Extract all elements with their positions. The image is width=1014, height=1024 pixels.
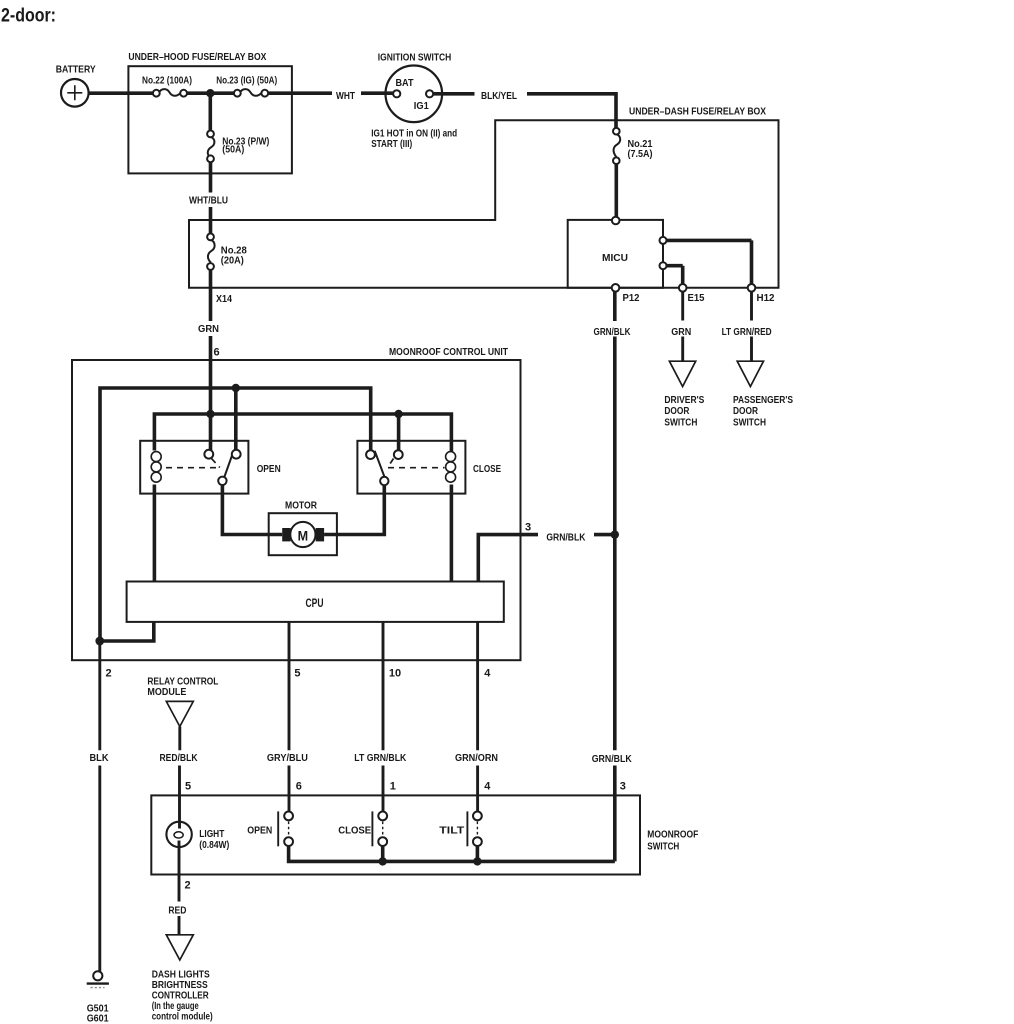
svg-text:WHT: WHT xyxy=(336,90,355,102)
svg-text:LT GRN/RED: LT GRN/RED xyxy=(722,326,772,338)
svg-text:No.23 (IG) (50A): No.23 (IG) (50A) xyxy=(216,75,277,87)
svg-text:CLOSE: CLOSE xyxy=(473,463,501,475)
svg-text:4: 4 xyxy=(484,668,491,680)
svg-text:X14: X14 xyxy=(216,293,232,305)
svg-text:M: M xyxy=(298,527,309,543)
svg-text:3: 3 xyxy=(525,522,531,534)
svg-text:control module): control module) xyxy=(152,1011,213,1023)
svg-text:MOTOR: MOTOR xyxy=(285,500,317,512)
svg-text:MODULE: MODULE xyxy=(147,686,186,698)
svg-text:MOONROOF: MOONROOF xyxy=(647,829,698,841)
svg-text:OPEN: OPEN xyxy=(257,463,281,475)
svg-text:GRN/BLK: GRN/BLK xyxy=(546,532,585,544)
svg-text:GRN/BLK: GRN/BLK xyxy=(592,753,632,765)
svg-text:UNDER–DASH FUSE/RELAY BOX: UNDER–DASH FUSE/RELAY BOX xyxy=(629,105,766,117)
svg-text:No.22 (100A): No.22 (100A) xyxy=(142,74,192,86)
svg-text:BAT: BAT xyxy=(396,77,414,89)
svg-text:2-door:: 2-door: xyxy=(1,6,56,27)
svg-text:RED/BLK: RED/BLK xyxy=(160,752,198,764)
svg-text:GRN/ORN: GRN/ORN xyxy=(455,752,498,764)
svg-text:2: 2 xyxy=(185,880,191,892)
svg-text:BATTERY: BATTERY xyxy=(56,64,96,76)
svg-text:IG1: IG1 xyxy=(414,100,429,112)
svg-text:E15: E15 xyxy=(688,292,705,304)
svg-text:G601: G601 xyxy=(87,1013,109,1024)
svg-text:MICU: MICU xyxy=(602,252,628,264)
svg-text:5: 5 xyxy=(185,781,191,793)
svg-text:BLK/YEL: BLK/YEL xyxy=(481,90,517,102)
svg-text:GRY/BLU: GRY/BLU xyxy=(267,752,308,764)
svg-text:OPEN: OPEN xyxy=(247,825,272,837)
svg-text:P12: P12 xyxy=(623,292,640,304)
svg-text:4: 4 xyxy=(484,781,491,793)
svg-text:WHT/BLU: WHT/BLU xyxy=(189,195,228,207)
svg-text:CPU: CPU xyxy=(306,598,324,610)
svg-text:SWITCH: SWITCH xyxy=(664,416,697,428)
svg-text:1: 1 xyxy=(390,781,396,793)
svg-text:H12: H12 xyxy=(757,292,775,304)
svg-text:DOOR: DOOR xyxy=(664,405,689,417)
svg-text:3: 3 xyxy=(620,781,626,793)
svg-text:(20A): (20A) xyxy=(221,255,244,267)
svg-text:TILT: TILT xyxy=(439,825,465,837)
svg-text:SWITCH: SWITCH xyxy=(733,416,766,428)
svg-text:GRN/BLK: GRN/BLK xyxy=(594,326,631,338)
svg-text:2: 2 xyxy=(106,668,112,680)
svg-text:START (III): START (III) xyxy=(371,138,412,150)
svg-text:5: 5 xyxy=(294,668,300,680)
svg-text:CLOSE: CLOSE xyxy=(338,825,371,837)
svg-text:(0.84W): (0.84W) xyxy=(199,839,229,851)
svg-text:UNDER–HOOD FUSE/RELAY BOX: UNDER–HOOD FUSE/RELAY BOX xyxy=(128,51,266,63)
svg-text:BLK: BLK xyxy=(90,752,109,764)
svg-text:6: 6 xyxy=(296,781,302,793)
svg-text:GRN: GRN xyxy=(198,323,219,335)
svg-text:LT GRN/BLK: LT GRN/BLK xyxy=(354,752,406,764)
svg-text:(50A): (50A) xyxy=(222,144,244,156)
svg-text:10: 10 xyxy=(389,668,401,680)
svg-text:MOONROOF CONTROL UNIT: MOONROOF CONTROL UNIT xyxy=(389,346,508,358)
svg-text:(7.5A): (7.5A) xyxy=(628,148,653,160)
svg-text:IGNITION SWITCH: IGNITION SWITCH xyxy=(378,52,452,64)
svg-text:DOOR: DOOR xyxy=(733,405,758,417)
svg-text:6: 6 xyxy=(214,347,220,359)
svg-text:SWITCH: SWITCH xyxy=(647,841,679,853)
svg-text:GRN: GRN xyxy=(671,326,691,338)
svg-text:RED: RED xyxy=(168,905,186,917)
